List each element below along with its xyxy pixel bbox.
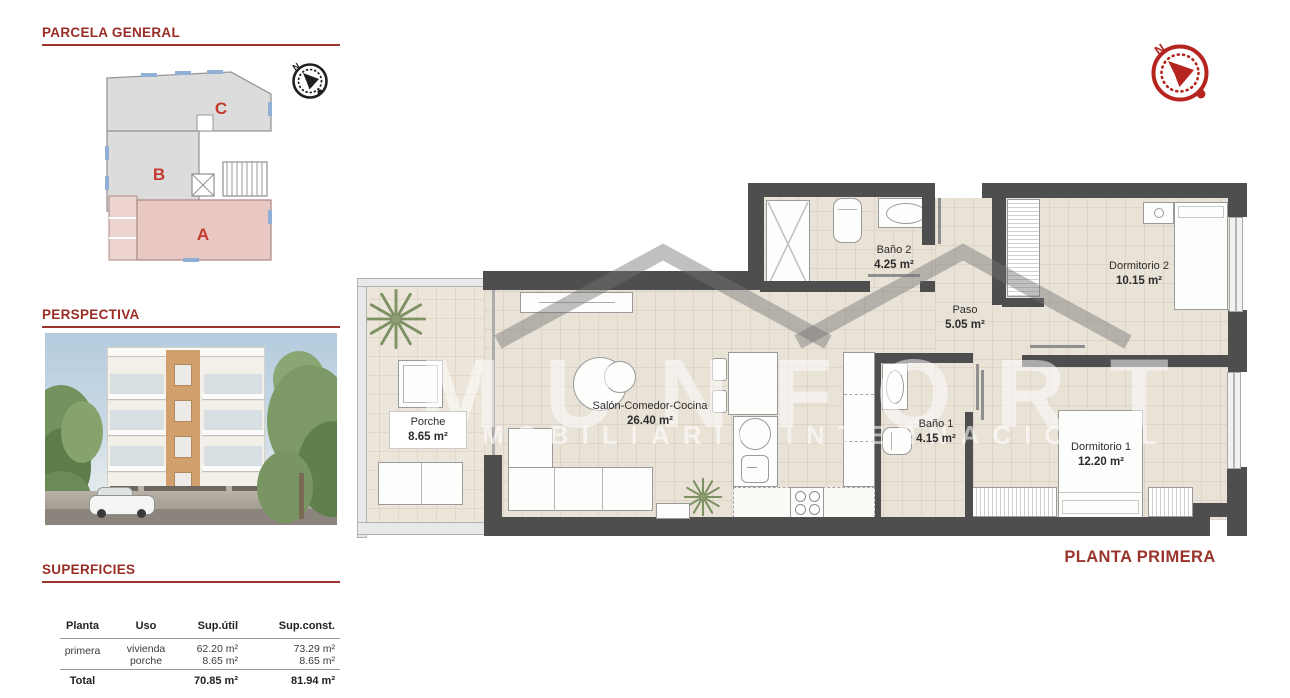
tree [257, 451, 313, 523]
car-wheel [97, 509, 106, 518]
balcony [110, 374, 164, 394]
room-label-bano1: Baño 1 4.15 m² [876, 418, 996, 446]
lamp [1154, 208, 1164, 218]
table-header-sup-const: Sup.const. [250, 620, 335, 632]
room-area: 5.05 m² [905, 318, 1025, 332]
lounger-divider [421, 463, 422, 504]
tall-cabinet [843, 352, 875, 487]
compass-n-label: N [291, 61, 302, 73]
wall-segment [1227, 467, 1247, 536]
tv-unit [520, 292, 633, 313]
balcony [204, 374, 262, 394]
balcony-slab [202, 394, 264, 399]
unit-c-shape [107, 72, 271, 131]
compass-icon-black: N [286, 57, 334, 110]
dorm2-door-leaf [1030, 345, 1085, 348]
wall-segment [748, 183, 935, 197]
tree-trunk [299, 473, 304, 519]
entry-door-leaf [938, 198, 941, 244]
table-total-label: Total [55, 675, 110, 687]
table-cell-planta: primera [55, 645, 110, 657]
balcony [204, 446, 262, 466]
palm-center [700, 494, 706, 500]
superficies-rule [42, 581, 340, 583]
compass-dot [317, 89, 322, 94]
room-area: 4.15 m² [876, 432, 996, 446]
stove [790, 487, 824, 518]
table-cell-util-porche: 8.65 m² [160, 655, 238, 667]
nightstand [1143, 202, 1174, 224]
table-total-util: 70.85 m² [160, 675, 238, 687]
wall-segment [992, 198, 1006, 305]
perspectiva-rule [42, 326, 340, 328]
balcony [110, 446, 164, 466]
sofa-cushion-line [602, 468, 603, 510]
wall-segment [922, 197, 935, 245]
wall-segment [483, 271, 764, 290]
balcony [204, 410, 262, 430]
window [1227, 372, 1241, 469]
compass-icon-red: N [1143, 36, 1217, 115]
wardrobe [1007, 199, 1040, 297]
floor-plan: Porche 8.65 m² Salón-Comedor-Cocina 26.4… [355, 178, 1250, 544]
stove-burner [809, 491, 820, 502]
room-name: Salón-Comedor-Cocina [570, 400, 730, 414]
table-total-const: 81.94 m² [250, 675, 335, 687]
table-rule [60, 669, 340, 670]
cabinet-divider [844, 394, 874, 395]
wall-segment [484, 517, 1210, 536]
wardrobe [1148, 487, 1193, 517]
room-name: Dormitorio 2 [1069, 260, 1209, 274]
unit-a-label: A [197, 225, 209, 244]
palm-center [392, 315, 401, 324]
shower [766, 200, 810, 288]
compass-needle [303, 73, 319, 90]
wall-segment [1228, 183, 1247, 217]
room-area: 4.25 m² [834, 258, 954, 272]
dorm1-door-leaf [981, 370, 984, 420]
room-area: 12.20 m² [1031, 455, 1171, 469]
plan-sheet: PARCELA GENERAL [0, 0, 1290, 698]
porche-table [398, 360, 443, 408]
table-cell-util-vivienda: 62.20 m² [160, 643, 238, 655]
balcony-slab [202, 466, 264, 471]
sofa-cushion-line [554, 468, 555, 510]
unit-c-label: C [215, 99, 227, 118]
sink-line [747, 467, 757, 468]
toilet [833, 198, 862, 243]
room-label-salon: Salón-Comedor-Cocina 26.40 m² [570, 400, 730, 428]
fridge [739, 418, 771, 450]
wardrobe [972, 487, 1057, 517]
parcela-general-title: PARCELA GENERAL [42, 25, 180, 40]
table-inset [403, 365, 438, 403]
stairs [223, 162, 267, 196]
dining-chair [712, 358, 727, 381]
porche-rail-top [357, 278, 486, 287]
wall-segment [982, 183, 1247, 198]
washbasin [882, 363, 908, 410]
building-facade [107, 347, 265, 511]
sofa [508, 467, 653, 511]
basin-bowl [886, 203, 926, 224]
room-label-paso: Paso 5.05 m² [905, 304, 1025, 332]
site-plan: C B A [103, 58, 273, 266]
round-table-small [604, 361, 636, 393]
porche-lounger [378, 462, 463, 505]
unit-b-label: B [153, 165, 165, 184]
room-area: 8.65 m² [392, 430, 464, 444]
porche-rail-bottom [357, 522, 486, 535]
palm-tree [363, 286, 429, 357]
strip-window [174, 364, 192, 386]
strip-window [174, 400, 192, 422]
room-area: 10.15 m² [1069, 274, 1209, 288]
wall-segment [1193, 503, 1227, 517]
table-header-sup-util: Sup.útil [160, 620, 238, 632]
room-label-dormitorio2: Dormitorio 2 10.15 m² [1069, 260, 1209, 288]
stove-burner [795, 491, 806, 502]
unit-a-strip [109, 196, 137, 260]
compass-dot [1197, 90, 1206, 99]
basin-bowl [886, 370, 904, 404]
balcony-slab [108, 466, 166, 471]
toilet-line [838, 209, 857, 210]
room-name: Porche [392, 416, 464, 430]
room-name: Baño 1 [876, 418, 996, 432]
balcony-slab [108, 430, 166, 435]
unit-c-notch [197, 115, 213, 131]
sheet-line [1059, 492, 1142, 493]
plan-title: PLANTA PRIMERA [1030, 548, 1250, 567]
balcony-slab [202, 430, 264, 435]
stove-burner [795, 504, 806, 515]
wall-segment [875, 353, 973, 363]
room-name: Paso [905, 304, 1025, 318]
bano2-door-leaf [868, 274, 920, 277]
wall-segment [1228, 310, 1247, 372]
wall-segment [484, 455, 502, 517]
porche-rail-left [357, 280, 367, 538]
tree [61, 401, 103, 463]
room-label-dormitorio1: Dormitorio 1 12.20 m² [1031, 441, 1171, 469]
room-name: Baño 2 [834, 244, 954, 258]
building-render [45, 333, 337, 525]
table-rule [60, 638, 340, 639]
doorstep [656, 503, 690, 519]
pillow [1062, 500, 1139, 514]
room-label-porche: Porche 8.65 m² [389, 411, 467, 449]
wall-segment [1022, 355, 1230, 367]
wall-segment [760, 281, 870, 292]
room-area: 26.40 m² [570, 414, 730, 428]
strip-window [174, 436, 192, 458]
balcony-slab [108, 394, 166, 399]
dining-table [728, 352, 778, 415]
parcela-rule [42, 44, 340, 46]
room-label-bano2: Baño 2 4.25 m² [834, 244, 954, 272]
table-cell-const-porche: 8.65 m² [250, 655, 335, 667]
glass-partition [492, 290, 495, 455]
site-plan-drawing: C B A [103, 58, 273, 266]
car-wheel [137, 509, 146, 518]
bano1-door-leaf [976, 364, 979, 410]
perspectiva-title: PERSPECTIVA [42, 307, 140, 322]
superficies-title: SUPERFICIES [42, 562, 135, 577]
pillow [1178, 206, 1224, 218]
window [1229, 217, 1243, 312]
room-name: Dormitorio 1 [1031, 441, 1171, 455]
wall-segment [748, 183, 764, 290]
compass-n-label: N [1152, 41, 1168, 59]
wall-segment [920, 281, 935, 292]
table-cell-const-vivienda: 73.29 m² [250, 643, 335, 655]
tv-line [539, 302, 615, 303]
compass-needle [1168, 61, 1194, 87]
balcony [110, 410, 164, 430]
stove-burner [809, 504, 820, 515]
table-header-planta: Planta [55, 620, 110, 632]
cabinet-divider [844, 441, 874, 442]
bed-double [1174, 202, 1228, 310]
kitchen-sink [741, 455, 769, 483]
